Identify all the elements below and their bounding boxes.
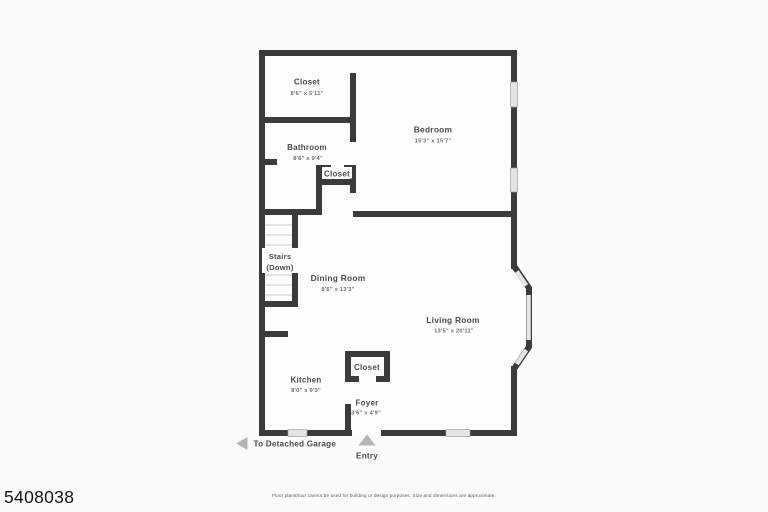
plan-annotations: To Detached Garage Entry <box>236 435 378 461</box>
stairs-label-line1: Stairs <box>269 252 292 261</box>
wall-foyer-closet-bottom-left <box>345 376 359 382</box>
entry-arrow-icon <box>359 435 376 446</box>
wall-stairs-top <box>259 209 322 215</box>
foyer-closet-label: Closet <box>354 363 380 372</box>
bedroom-label: Bedroom <box>414 125 453 135</box>
hall-closet-label: Closet <box>324 170 350 179</box>
garage-annotation-label: To Detached Garage <box>254 440 337 449</box>
entry-annotation-label: Entry <box>356 452 378 461</box>
wall-top <box>259 50 517 56</box>
window-bedroom-lower <box>511 168 518 192</box>
stairs-label-line2: (Down) <box>266 263 293 272</box>
bedroom-dims: 15'3" x 15'7" <box>415 139 452 145</box>
watermark-id: 5408038 <box>4 487 74 508</box>
closet-upper-dims: 8'6" x 5'11" <box>291 91 324 97</box>
wall-foyer-left <box>345 404 351 436</box>
wall-stairs-bottom <box>259 301 298 307</box>
wall-bathroom-stub <box>259 159 277 165</box>
wall-bedroom-left <box>350 73 356 142</box>
wall-foyer-closet-top <box>345 351 390 357</box>
wall-kitchen-stub <box>259 331 288 337</box>
living-room-label: Living Room <box>426 315 479 325</box>
kitchen-label: Kitchen <box>290 376 321 385</box>
wall-bedroom-bottom <box>353 211 517 217</box>
disclaimer-text: Floor plans/tour cannot be used for buil… <box>0 493 768 498</box>
floorplan-page: Closet 8'6" x 5'11" Bedroom 15'3" x 15'7… <box>0 0 768 512</box>
living-room-dims: 13'5" x 20'11" <box>434 329 474 335</box>
bathroom-label: Bathroom <box>287 143 327 152</box>
wall-foyer-closet-bottom-right <box>376 376 390 382</box>
dining-room-label: Dining Room <box>311 273 366 283</box>
floorplan-drawing: Closet 8'6" x 5'11" Bedroom 15'3" x 15'7… <box>0 0 768 512</box>
wall-left <box>259 50 265 436</box>
closet-upper-label: Closet <box>294 78 320 87</box>
window-bedroom-upper <box>511 82 518 107</box>
foyer-label: Foyer <box>355 399 378 408</box>
kitchen-dims: 8'0" x 9'3" <box>291 388 321 394</box>
garage-arrow-icon <box>236 437 248 450</box>
wall-right-lower <box>511 366 517 436</box>
foyer-dims: 3'6" x 4'9" <box>351 411 381 417</box>
wall-closet-upper-bottom <box>259 117 356 123</box>
window-living <box>446 430 470 437</box>
window-kitchen <box>288 430 307 437</box>
dining-room-dims: 8'6" x 13'3" <box>321 287 354 293</box>
wall-hall-closet-left <box>316 165 322 215</box>
bathroom-dims: 8'6" x 9'4" <box>293 156 323 162</box>
